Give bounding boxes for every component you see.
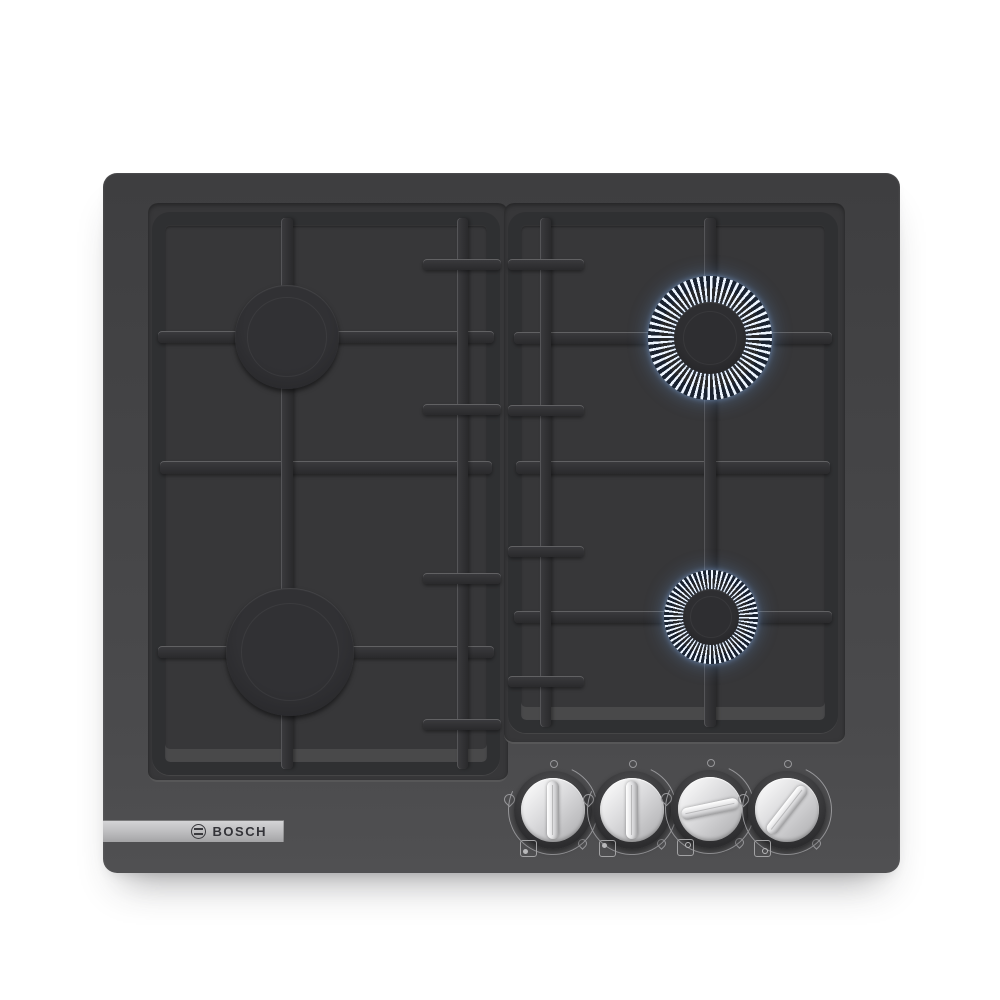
knob-off-marker-icon (629, 760, 637, 768)
brand-label: BOSCH (213, 825, 267, 838)
brand-strip: BOSCH (103, 820, 284, 842)
burner-cap (226, 588, 354, 716)
knob-face (678, 777, 742, 841)
product-stage: BOSCH (0, 0, 1000, 1000)
knob-off-marker-icon (550, 760, 558, 768)
knob-face (755, 778, 819, 842)
knob-face (521, 778, 585, 842)
burner-position-icon (677, 839, 694, 856)
knob-handle (626, 781, 638, 839)
burner-back-left (235, 285, 339, 389)
control-knob-front-right[interactable] (737, 760, 837, 860)
gas-hob-surface: BOSCH (103, 173, 900, 873)
burner-position-dot (685, 842, 691, 848)
grate-finger (508, 546, 584, 557)
burner-position-dot (762, 848, 768, 854)
grate-finger (508, 259, 584, 270)
burner-cap (683, 589, 739, 645)
burner-position-dot (523, 849, 528, 854)
grate-bar (540, 218, 551, 727)
knob-off-marker-icon (707, 759, 715, 767)
burner-back-right (648, 276, 772, 400)
grate-finger (508, 405, 584, 416)
bosch-logo-icon (191, 824, 206, 839)
knob-face (600, 778, 664, 842)
grate-finger (423, 259, 501, 270)
grate-bar (160, 461, 492, 474)
knob-bezel (514, 771, 592, 849)
knob-handle (764, 783, 809, 836)
burner-front-right (664, 570, 758, 664)
burner-cap (674, 302, 746, 374)
burner-position-icon (599, 840, 616, 857)
knob-handle (547, 781, 559, 839)
knob-handle (680, 797, 739, 821)
grate-bar (457, 218, 468, 769)
burner-cap (235, 285, 339, 389)
grate-finger (423, 573, 501, 584)
grate-bar (516, 461, 830, 474)
burner-position-icon (520, 840, 537, 857)
burner-front-left (226, 588, 354, 716)
grate-finger (423, 404, 501, 415)
burner-position-dot (602, 843, 607, 848)
knob-bezel (748, 771, 826, 849)
burner-position-icon (754, 840, 771, 857)
grate-finger (508, 676, 584, 687)
grate-finger (423, 719, 501, 730)
knob-off-marker-icon (784, 760, 792, 768)
